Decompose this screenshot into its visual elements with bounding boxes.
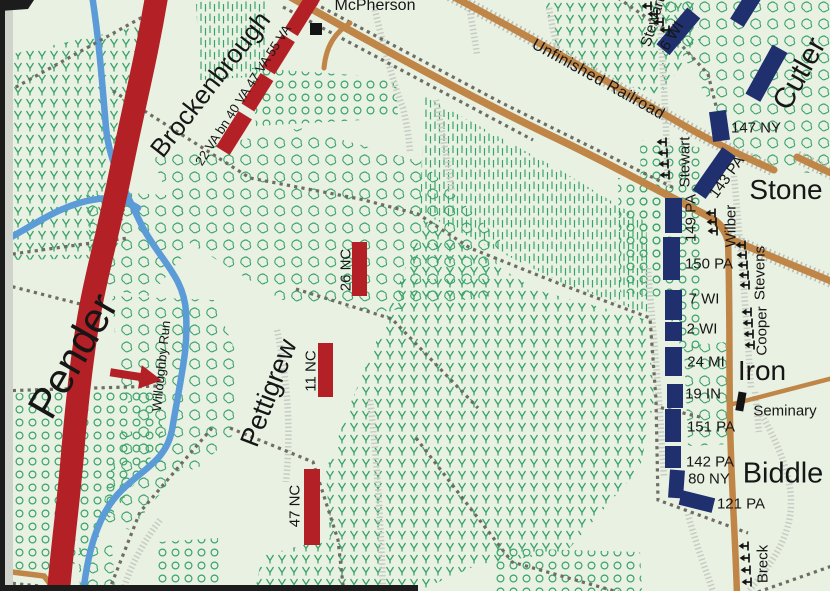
- label-seminary: Seminary: [753, 404, 816, 419]
- label-2wi: 2 WI: [687, 322, 718, 337]
- mcpherson-building: [310, 23, 322, 35]
- battle-map: McPherson Brockenbrough 22 VA bn 40 VA 4…: [0, 0, 830, 591]
- unit-rect-7wi: [665, 290, 682, 320]
- seminary-building: [735, 391, 746, 411]
- gun-icon: [741, 566, 751, 575]
- unit-rect-47nc: [304, 469, 320, 545]
- label-11nc: 11 NC: [304, 350, 319, 391]
- unit-rect-11nc: [318, 343, 333, 397]
- label-biddle: Biddle: [743, 460, 824, 489]
- label-stewart-south: Stewart: [678, 137, 693, 188]
- label-stevens: Stevens: [753, 246, 768, 300]
- label-breck: Breck: [756, 545, 771, 583]
- label-47nc: 47 NC: [288, 485, 303, 528]
- label-iron: Iron: [738, 357, 786, 385]
- orchard: [252, 68, 398, 126]
- unit-rect-149pa: [665, 198, 682, 233]
- label-cooper: Cooper: [755, 306, 770, 355]
- unit-rect-19in: [667, 384, 683, 408]
- label-121pa: 121 PA: [717, 497, 765, 512]
- label-mcpherson: McPherson: [335, 0, 416, 14]
- label-142pa: 142 PA: [686, 455, 734, 470]
- label-80ny: 80 NY: [688, 472, 730, 487]
- label-19in: 19 IN: [685, 387, 721, 402]
- unit-rect-24mi: [665, 347, 682, 376]
- orchard: [156, 538, 220, 591]
- label-150pa: 150 PA: [685, 257, 733, 272]
- label-149pa: 149 PA: [684, 194, 699, 242]
- road-south: [728, 240, 737, 591]
- label-147ny: 147 NY: [731, 121, 781, 136]
- label-26nc: 26 NC: [339, 249, 354, 292]
- gun-icon: [739, 542, 749, 551]
- unit-rect-151pa: [665, 409, 681, 442]
- label-wilber: Wilber: [724, 205, 739, 248]
- label-stone: Stone: [749, 176, 822, 204]
- unit-rect-150pa: [663, 237, 680, 280]
- orchard: [492, 548, 642, 591]
- gun-icon: [708, 227, 718, 236]
- label-151pa: 151 PA: [687, 420, 735, 435]
- label-7wi: 7 WI: [689, 292, 720, 307]
- gun-icon: [740, 554, 750, 563]
- unit-rect-2wi: [665, 322, 682, 341]
- unit-rect-142pa: [665, 446, 681, 468]
- gun-icon: [744, 330, 754, 339]
- label-24mi: 24 MI: [687, 355, 725, 370]
